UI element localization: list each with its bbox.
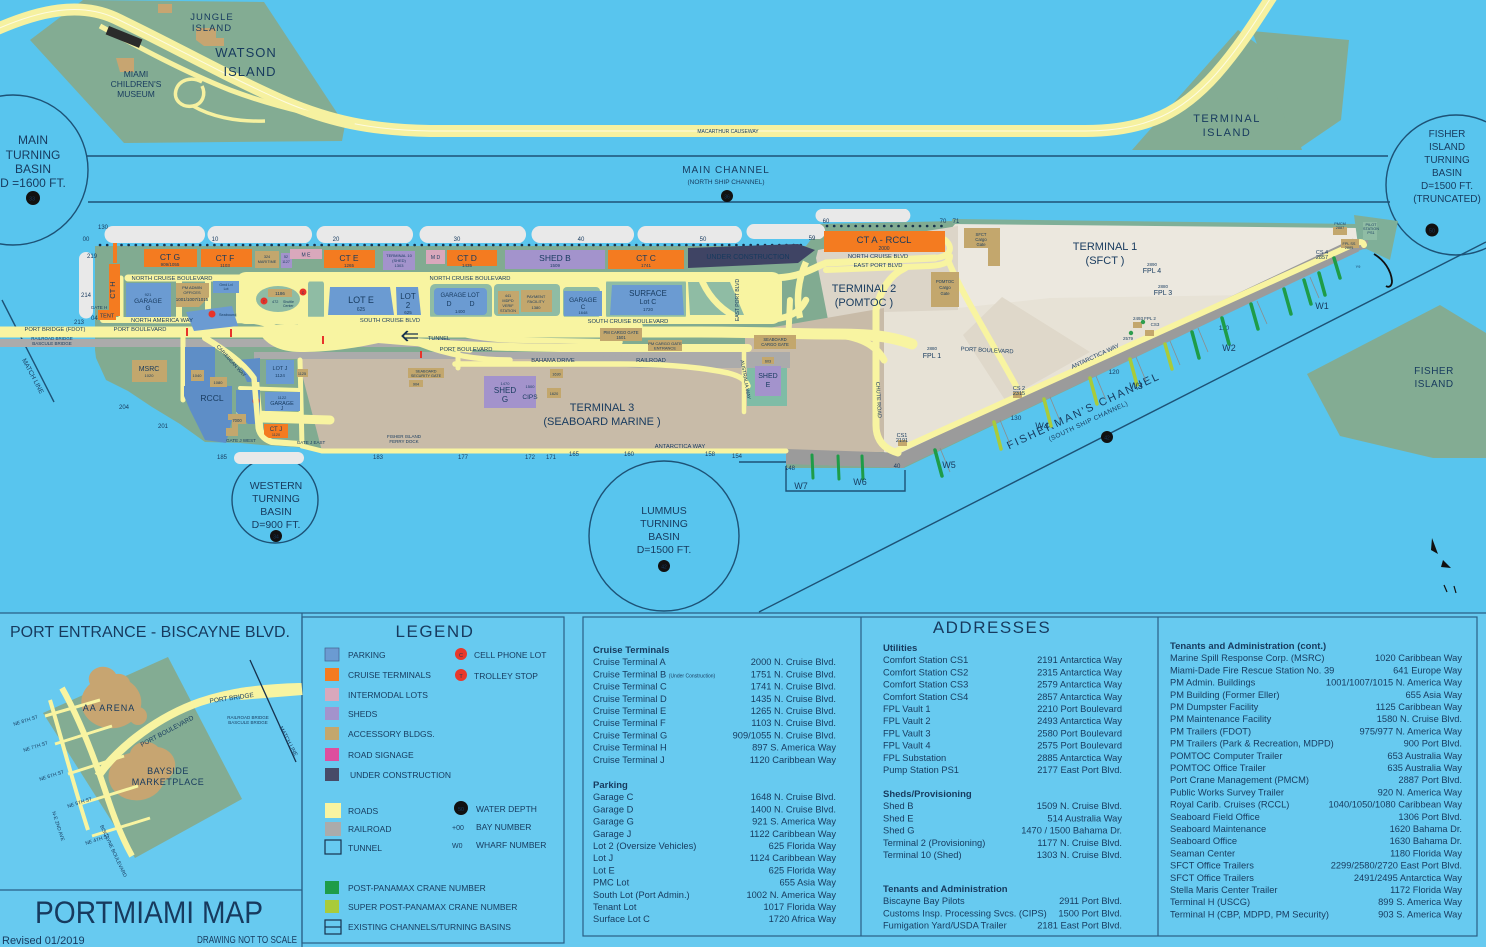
svg-text:Stella Maris Center Trailer: Stella Maris Center Trailer [1170, 885, 1277, 895]
svg-text:2890: 2890 [1147, 262, 1158, 267]
svg-text:WATSON: WATSON [215, 45, 277, 60]
svg-text:M D: M D [431, 255, 441, 261]
svg-text:1103 N. Cruise Blvd.: 1103 N. Cruise Blvd. [751, 718, 836, 728]
svg-text:LOT E: LOT E [348, 295, 374, 305]
svg-text:LOT J: LOT J [273, 366, 288, 372]
svg-text:1500: 1500 [526, 384, 536, 389]
svg-text:975/977 N. America Way: 975/977 N. America Way [1360, 726, 1463, 736]
svg-text:MSRC: MSRC [139, 366, 160, 373]
svg-text:(POMTOC ): (POMTOC ) [835, 297, 893, 309]
svg-text:Customs Insp. Processing Svcs.: Customs Insp. Processing Svcs. (CIPS) [883, 908, 1047, 918]
svg-text:Garage C: Garage C [593, 792, 634, 802]
svg-text:Cruise Terminal C: Cruise Terminal C [593, 682, 667, 692]
svg-text:FISHER: FISHER [1414, 366, 1454, 377]
svg-text:Seaman Center: Seaman Center [1170, 848, 1235, 858]
svg-text:201: 201 [158, 424, 169, 430]
svg-text:Lot J: Lot J [593, 853, 613, 863]
svg-text:(TRUNCATED): (TRUNCATED) [1413, 194, 1481, 205]
svg-text:625: 625 [404, 310, 412, 315]
svg-text:MARKETPLACE: MARKETPLACE [132, 777, 205, 787]
svg-text:Lot: Lot [224, 287, 229, 291]
svg-text:2493: 2493 [1133, 316, 1144, 321]
svg-text:1040: 1040 [193, 373, 203, 378]
svg-text:70: 70 [940, 219, 947, 225]
svg-text:42: 42 [1104, 436, 1110, 442]
svg-text:Garage G: Garage G [593, 817, 634, 827]
svg-text:LUMMUS: LUMMUS [641, 505, 687, 517]
svg-text:20: 20 [333, 237, 340, 243]
svg-text:ISLAND: ISLAND [1414, 379, 1453, 390]
svg-text:2: 2 [406, 301, 411, 310]
svg-text:D: D [446, 301, 451, 308]
svg-text:185: 185 [217, 455, 228, 461]
svg-text:CELL PHONE LOT: CELL PHONE LOT [474, 650, 546, 660]
svg-text:2880: 2880 [1158, 284, 1169, 289]
svg-text:TURNING: TURNING [1424, 155, 1470, 166]
svg-text:W1: W1 [1315, 301, 1329, 311]
svg-text:00: 00 [83, 237, 90, 243]
svg-text:1630 Bahama Dr.: 1630 Bahama Dr. [1390, 836, 1462, 846]
svg-text:897 S. America Way: 897 S. America Way [752, 743, 836, 753]
svg-text:SURFACE: SURFACE [629, 289, 667, 298]
svg-text:1124 Caribbean Way: 1124 Caribbean Way [750, 853, 837, 863]
svg-text:1180 Florida Way: 1180 Florida Way [1390, 848, 1462, 858]
svg-text:MUSEUM: MUSEUM [117, 89, 155, 99]
svg-text:904: 904 [413, 383, 419, 387]
svg-text:899 S. America Way: 899 S. America Way [1378, 897, 1462, 907]
svg-text:PORT BOULEVARD: PORT BOULEVARD [440, 347, 493, 353]
svg-text:BAY NUMBER: BAY NUMBER [476, 822, 531, 832]
svg-text:2191 Antarctica Way: 2191 Antarctica Way [1037, 655, 1122, 665]
svg-text:1435: 1435 [462, 263, 473, 268]
svg-text:Tenants and Administration (co: Tenants and Administration (cont.) [1170, 641, 1326, 652]
svg-text:2315 Antarctica Way: 2315 Antarctica Way [1037, 667, 1122, 677]
svg-text:2885 Antarctica Way: 2885 Antarctica Way [1037, 753, 1122, 763]
svg-text:1122 Caribbean Way: 1122 Caribbean Way [750, 829, 837, 839]
svg-text:40: 40 [894, 464, 901, 470]
svg-text:BASIN: BASIN [260, 506, 292, 518]
svg-text:1720: 1720 [643, 307, 654, 312]
svg-text:CT C: CT C [636, 253, 656, 263]
svg-text:1017 Florida Way: 1017 Florida Way [763, 902, 836, 912]
svg-text:D=1500 FT.: D=1500 FT. [1421, 181, 1473, 192]
svg-text:Surface Lot C: Surface Lot C [593, 914, 650, 924]
svg-text:Y9: Y9 [1356, 265, 1361, 269]
svg-text:921 S. America Way: 921 S. America Way [752, 817, 836, 827]
svg-text:INTERMODAL LOTS: INTERMODAL LOTS [348, 690, 428, 700]
svg-text:2000 N. Cruise Blvd.: 2000 N. Cruise Blvd. [751, 657, 836, 667]
svg-text:1103: 1103 [220, 263, 230, 268]
svg-text:CT H: CT H [108, 281, 117, 298]
svg-text:W0: W0 [452, 843, 463, 850]
svg-text:641 Europe Way: 641 Europe Way [1393, 665, 1462, 675]
svg-text:130: 130 [98, 225, 109, 231]
svg-text:1303 N. Cruise Blvd.: 1303 N. Cruise Blvd. [1037, 850, 1122, 860]
svg-text:177: 177 [458, 455, 469, 461]
svg-text:160: 160 [624, 452, 635, 458]
svg-text:2580 Port Boulevard: 2580 Port Boulevard [1037, 728, 1122, 738]
svg-text:BASCULE BRIDGE: BASCULE BRIDGE [228, 720, 268, 725]
svg-text:Comfort Station CS3: Comfort Station CS3 [883, 680, 968, 690]
svg-text:BAYSIDE: BAYSIDE [147, 766, 189, 776]
svg-text:South Lot (Port Admin.): South Lot (Port Admin.) [593, 890, 690, 900]
svg-text:Garage D: Garage D [593, 804, 634, 814]
svg-text:Shed E: Shed E [883, 813, 914, 823]
svg-text:1177 N. Cruise Blvd.: 1177 N. Cruise Blvd. [1037, 838, 1122, 848]
svg-text:2579 Antarctica Way: 2579 Antarctica Way [1037, 680, 1122, 690]
svg-text:ISLAND: ISLAND [1429, 142, 1465, 153]
svg-text:PMC Lot: PMC Lot [593, 878, 630, 888]
svg-text:PORT ENTRANCE - BISCAYNE BLVD.: PORT ENTRANCE - BISCAYNE BLVD. [10, 624, 290, 641]
svg-text:653 Australia Way: 653 Australia Way [1387, 751, 1462, 761]
svg-text:130: 130 [1011, 415, 1022, 422]
svg-text:1125 Caribbean Way: 1125 Caribbean Way [1376, 702, 1463, 712]
svg-text:Fumigation Yard/USDA Trailer: Fumigation Yard/USDA Trailer [883, 921, 1007, 931]
svg-text:903 S. America Way: 903 S. America Way [1378, 909, 1462, 919]
svg-text:FPL Vault 1: FPL Vault 1 [883, 704, 931, 714]
svg-text:625 Florida Way: 625 Florida Way [769, 865, 837, 875]
svg-text:SHEDS: SHEDS [348, 709, 378, 719]
svg-text:2191: 2191 [896, 438, 908, 444]
svg-text:7000: 7000 [232, 418, 242, 423]
svg-text:324: 324 [264, 255, 270, 259]
svg-text:ROAD SIGNAGE: ROAD SIGNAGE [348, 750, 414, 760]
svg-text:Public Works Survey Trailer: Public Works Survey Trailer [1170, 787, 1284, 797]
svg-text:TROLLEY STOP: TROLLEY STOP [474, 671, 538, 681]
svg-text:30: 30 [454, 237, 461, 243]
svg-text:MIAMI: MIAMI [124, 69, 149, 79]
svg-text:Terminal 2 (Provisioning): Terminal 2 (Provisioning) [883, 838, 985, 848]
svg-text:148: 148 [785, 466, 796, 472]
svg-text:Pump Station PS1: Pump Station PS1 [883, 765, 959, 775]
svg-text:PORT BOULEVARD: PORT BOULEVARD [114, 327, 167, 333]
svg-text:TENT: TENT [100, 314, 115, 320]
svg-text:CT E: CT E [339, 253, 359, 263]
svg-text:SHED: SHED [494, 386, 516, 395]
svg-text:TERMINAL 1: TERMINAL 1 [1073, 241, 1137, 253]
svg-text:NORTH CRUISE BOULEVARD: NORTH CRUISE BOULEVARD [430, 276, 511, 282]
svg-text:2887: 2887 [1336, 226, 1344, 230]
svg-text:1509: 1509 [550, 263, 561, 268]
svg-text:Seaboard Office: Seaboard Office [1170, 836, 1237, 846]
svg-text:Terminal H (CBP, MDPD, PM Secu: Terminal H (CBP, MDPD, PM Security) [1170, 909, 1329, 919]
svg-text:625 Florida Way: 625 Florida Way [769, 841, 837, 851]
svg-text:FPL 2: FPL 2 [1144, 316, 1156, 321]
svg-text:WESTERN: WESTERN [250, 480, 303, 492]
svg-text:RAILROAD: RAILROAD [636, 358, 666, 364]
svg-text:1509 N. Cruise Blvd.: 1509 N. Cruise Blvd. [1037, 801, 1122, 811]
svg-text:ENTRANCE: ENTRANCE [654, 346, 676, 351]
svg-text:TUNNEL: TUNNEL [348, 843, 382, 853]
svg-text:1500 Port Blvd.: 1500 Port Blvd. [1058, 908, 1122, 918]
svg-text:1400: 1400 [455, 309, 466, 314]
svg-text:Seaboard Maintenance: Seaboard Maintenance [1170, 824, 1266, 834]
svg-text:Terminal H (USCG): Terminal H (USCG) [1170, 897, 1250, 907]
svg-text:ISLAND: ISLAND [224, 64, 277, 79]
svg-text:D: D [469, 301, 474, 308]
svg-text:D =1600 FT.: D =1600 FT. [0, 176, 66, 190]
svg-text:PARKING: PARKING [348, 650, 386, 660]
svg-text:MACARTHUR CAUSEWAY: MACARTHUR CAUSEWAY [697, 129, 759, 135]
svg-text:2579: 2579 [1123, 336, 1134, 341]
svg-text:2880: 2880 [927, 346, 938, 351]
svg-text:1265 N. Cruise Blvd.: 1265 N. Cruise Blvd. [751, 706, 836, 716]
svg-text:EAST PORT BLVD: EAST PORT BLVD [735, 279, 741, 322]
svg-text:172: 172 [525, 455, 536, 461]
svg-text:ROADS: ROADS [348, 806, 379, 816]
svg-text:1303: 1303 [395, 263, 405, 268]
svg-text:POMTOC: POMTOC [936, 279, 954, 284]
svg-text:2181 East Port Blvd.: 2181 East Port Blvd. [1037, 921, 1122, 931]
svg-text:214: 214 [81, 293, 92, 299]
svg-text:W3: W3 [1129, 381, 1143, 391]
svg-text:TERMINAL 3: TERMINAL 3 [570, 402, 634, 414]
svg-text:2885: 2885 [1345, 246, 1353, 250]
svg-text:SEABOARD: SEABOARD [415, 370, 436, 374]
svg-text:635 Australia Way: 635 Australia Way [1387, 763, 1462, 773]
svg-text:POMTOC Computer Trailer: POMTOC Computer Trailer [1170, 751, 1282, 761]
svg-text:E: E [766, 382, 771, 389]
svg-text:Cruise Terminal A: Cruise Terminal A [593, 657, 666, 667]
svg-text:LEGEND: LEGEND [396, 622, 475, 641]
svg-text:PM Building (Former Eller): PM Building (Former Eller) [1170, 690, 1280, 700]
svg-text:1001/1007/1015 N. America Way: 1001/1007/1015 N. America Way [1326, 678, 1462, 688]
svg-text:FPL Substation: FPL Substation [883, 753, 946, 763]
svg-text:BASIN: BASIN [1432, 168, 1462, 179]
svg-text:W6: W6 [853, 477, 867, 487]
svg-text:441: 441 [505, 294, 511, 298]
svg-text:GARAGE: GARAGE [134, 298, 162, 305]
svg-text:165: 165 [569, 452, 580, 458]
svg-text:(SFCT ): (SFCT ) [1086, 255, 1125, 267]
svg-text:FPL 3: FPL 3 [1154, 290, 1173, 297]
svg-text:34: 34 [273, 535, 279, 541]
svg-text:ANTARCTICA WAY: ANTARCTICA WAY [655, 444, 706, 450]
svg-text:FPL Vault 2: FPL Vault 2 [883, 716, 931, 726]
svg-text:Cruise Terminal D: Cruise Terminal D [593, 694, 667, 704]
svg-text:Cargo: Cargo [939, 285, 951, 290]
svg-text:1470 / 1500 Bahama Dr.: 1470 / 1500 Bahama Dr. [1021, 826, 1122, 836]
svg-text:1400 N. Cruise Blvd.: 1400 N. Cruise Blvd. [751, 804, 836, 814]
svg-text:Comfort Station CS2: Comfort Station CS2 [883, 667, 968, 677]
svg-text:2000: 2000 [878, 246, 889, 252]
svg-text:1380: 1380 [532, 305, 542, 310]
svg-text:(SEABOARD MARINE ): (SEABOARD MARINE ) [543, 416, 660, 428]
svg-text:PORTMIAMI MAP: PORTMIAMI MAP [35, 894, 263, 930]
svg-text:CIPS: CIPS [522, 394, 538, 401]
svg-text:W7: W7 [794, 481, 808, 491]
svg-text:909/1055 N. Cruise Blvd.: 909/1055 N. Cruise Blvd. [733, 730, 836, 740]
svg-text:CT F: CT F [216, 253, 235, 263]
svg-text:1741 N. Cruise Blvd.: 1741 N. Cruise Blvd. [751, 682, 836, 692]
svg-text:W2: W2 [1222, 343, 1236, 353]
svg-text:472: 472 [272, 300, 278, 304]
svg-text:Cruise Terminal G: Cruise Terminal G [593, 730, 667, 740]
svg-text:RAILROAD: RAILROAD [348, 824, 391, 834]
svg-text:219: 219 [87, 254, 98, 260]
svg-text:1080: 1080 [214, 380, 224, 385]
svg-text:1620: 1620 [550, 392, 558, 396]
svg-text:SUPER POST-PANAMAX CRANE NUMBE: SUPER POST-PANAMAX CRANE NUMBER [348, 902, 517, 912]
svg-text:PM Dumpster Facility: PM Dumpster Facility [1170, 702, 1259, 712]
svg-text:1127: 1127 [282, 260, 290, 264]
svg-text:1648: 1648 [579, 310, 589, 315]
svg-text:Cruise Terminals: Cruise Terminals [593, 645, 669, 656]
svg-text:PM Admin. Buildings: PM Admin. Buildings [1170, 678, 1256, 688]
svg-text:Cruise Terminal E: Cruise Terminal E [593, 706, 666, 716]
svg-text:BAHAMA DRIVE: BAHAMA DRIVE [531, 358, 575, 364]
svg-text:TURNING: TURNING [252, 493, 300, 505]
svg-text:Gate: Gate [976, 242, 986, 247]
svg-text:1124: 1124 [275, 373, 285, 378]
svg-text:Terminal 10 (Shed): Terminal 10 (Shed) [883, 850, 962, 860]
svg-text:1002 N. America Way: 1002 N. America Way [746, 890, 836, 900]
svg-text:1306 Port Blvd.: 1306 Port Blvd. [1398, 812, 1462, 822]
svg-text:Royal Carib. Cruises (RCCL): Royal Carib. Cruises (RCCL) [1170, 800, 1289, 810]
svg-text:1020 Caribbean Way: 1020 Caribbean Way [1375, 653, 1462, 663]
svg-text:1751 N. Cruise Blvd.: 1751 N. Cruise Blvd. [751, 669, 836, 679]
svg-text:NORTH AMERICA WAY: NORTH AMERICA WAY [131, 318, 193, 324]
svg-text:920 N. America Way: 920 N. America Way [1378, 787, 1463, 797]
svg-text:BASCULE BRIDGE: BASCULE BRIDGE [32, 341, 72, 346]
svg-text:Cruise Terminal H: Cruise Terminal H [593, 743, 667, 753]
svg-text:ACCESSORY BLDGS.: ACCESSORY BLDGS. [348, 729, 435, 739]
svg-text:183: 183 [373, 455, 384, 461]
svg-text:1186: 1186 [275, 291, 285, 296]
svg-text:TUNNEL: TUNNEL [428, 336, 450, 342]
svg-text:W5: W5 [942, 460, 956, 470]
svg-text:TURNING: TURNING [640, 518, 688, 530]
svg-text:Cruise Terminal F: Cruise Terminal F [593, 718, 666, 728]
svg-text:655 Asia Way: 655 Asia Way [1406, 690, 1463, 700]
svg-text:Shed B: Shed B [883, 801, 914, 811]
svg-text:MARITIME: MARITIME [258, 260, 277, 264]
svg-text:Utilities: Utilities [883, 643, 917, 654]
svg-text:FPL Vault 3: FPL Vault 3 [883, 728, 931, 738]
svg-text:PM Trailers (FDOT): PM Trailers (FDOT) [1170, 726, 1251, 736]
svg-text:1020: 1020 [145, 373, 155, 378]
svg-text:1648 N. Cruise Blvd.: 1648 N. Cruise Blvd. [751, 792, 836, 802]
svg-text:(NORTH SHIP CHANNEL): (NORTH SHIP CHANNEL) [687, 179, 764, 186]
svg-text:MAIN: MAIN [18, 133, 48, 147]
svg-text:PM Trailers (Park & Recreatio: PM Trailers (Park & Recreation, MDPD) [1170, 739, 1334, 749]
svg-text:2315: 2315 [1013, 391, 1025, 397]
svg-text:1435 N. Cruise Blvd.: 1435 N. Cruise Blvd. [751, 694, 836, 704]
svg-text:50: 50 [1429, 229, 1435, 235]
svg-text:D=1500 FT.: D=1500 FT. [637, 544, 692, 556]
svg-text:GATE J WEST: GATE J WEST [226, 438, 256, 443]
svg-text:GARAGE: GARAGE [569, 297, 597, 304]
svg-text:BASIN: BASIN [648, 531, 680, 543]
svg-text:CARGO GATE: CARGO GATE [761, 342, 789, 347]
svg-text:1120: 1120 [272, 433, 280, 437]
svg-text:Garage J: Garage J [593, 829, 631, 839]
svg-text:G: G [502, 395, 508, 404]
svg-text:59: 59 [809, 236, 816, 242]
svg-text:Parking: Parking [593, 780, 628, 791]
svg-text:MDPD: MDPD [502, 299, 513, 303]
svg-text:OFFICES: OFFICES [183, 290, 201, 295]
svg-text:NORTH CRUISE BOULEVARD: NORTH CRUISE BOULEVARD [132, 276, 213, 282]
svg-text:60: 60 [823, 219, 830, 225]
svg-text:1580 N. Cruise Blvd.: 1580 N. Cruise Blvd. [1377, 714, 1462, 724]
svg-text:52: 52 [284, 255, 288, 259]
svg-text:WATER DEPTH: WATER DEPTH [476, 804, 537, 814]
svg-text:Seabound: Seabound [219, 313, 236, 317]
svg-text:921: 921 [145, 292, 152, 297]
svg-text:POMTOC Office Trailer: POMTOC Office Trailer [1170, 763, 1266, 773]
svg-text:G: G [145, 305, 150, 312]
svg-text:MAIN CHANNEL: MAIN CHANNEL [682, 165, 770, 176]
svg-text:SECURITY GATE: SECURITY GATE [411, 374, 442, 378]
svg-text:2299/2580/2720 East Port Blvd.: 2299/2580/2720 East Port Blvd. [1331, 861, 1462, 871]
svg-text:M E: M E [302, 253, 312, 259]
svg-text:2493 Antarctica Way: 2493 Antarctica Way [1037, 716, 1122, 726]
svg-text:CRUISE TERMINALS: CRUISE TERMINALS [348, 670, 431, 680]
svg-text:FERRY DOCK: FERRY DOCK [389, 439, 418, 444]
svg-text:Revised 01/2019: Revised 01/2019 [2, 935, 85, 947]
svg-text:SFCT Office Trailers: SFCT Office Trailers [1170, 873, 1254, 883]
svg-text:42: 42 [661, 565, 667, 571]
svg-text:Lot E: Lot E [593, 865, 615, 875]
svg-text:909/1055: 909/1055 [161, 262, 180, 267]
svg-text:FPL Vault 4: FPL Vault 4 [883, 741, 931, 751]
svg-text:CHILDREN'S: CHILDREN'S [111, 79, 162, 89]
svg-text:D=900 FT.: D=900 FT. [252, 519, 301, 531]
svg-text:AA ARENA: AA ARENA [83, 703, 136, 713]
svg-text:PM Maintenance Facility: PM Maintenance Facility [1170, 714, 1272, 724]
svg-text:SFCT Office Trailers: SFCT Office Trailers [1170, 861, 1254, 871]
svg-text:Cruise Terminal J: Cruise Terminal J [593, 755, 665, 765]
svg-text:2177 East Port Blvd.: 2177 East Port Blvd. [1037, 765, 1122, 775]
svg-text:1630: 1630 [552, 373, 560, 377]
svg-text:STATION: STATION [500, 309, 516, 313]
svg-text:158: 158 [705, 452, 716, 458]
svg-text:EXISTING CHANNELS/TURNING BASI: EXISTING CHANNELS/TURNING BASINS [348, 922, 511, 932]
svg-text:UNDER CONSTRUCTION: UNDER CONSTRUCTION [350, 770, 451, 780]
svg-text:CT A - RCCL: CT A - RCCL [857, 235, 912, 246]
svg-text:NORTH CRUISE BLVD: NORTH CRUISE BLVD [848, 254, 908, 260]
svg-text:GATE H: GATE H [91, 305, 107, 310]
svg-text:TURNING: TURNING [6, 148, 61, 162]
svg-text:TERMINAL 2: TERMINAL 2 [832, 283, 896, 295]
svg-text:FPL 4: FPL 4 [1143, 268, 1162, 275]
svg-text:1265: 1265 [344, 263, 355, 268]
svg-text:Lot C: Lot C [640, 299, 657, 306]
svg-text:2857 Antarctica Way: 2857 Antarctica Way [1037, 692, 1122, 702]
svg-text:WHARF NUMBER: WHARF NUMBER [476, 840, 546, 850]
svg-text:Seaboard Field Office: Seaboard Field Office [1170, 812, 1260, 822]
svg-text:Lot 2 (Oversize Vehicles): Lot 2 (Oversize Vehicles) [593, 841, 696, 851]
svg-text:W4: W4 [1035, 421, 1049, 431]
svg-text:ISLAND: ISLAND [1203, 127, 1252, 139]
svg-text:213: 213 [74, 320, 85, 326]
svg-text:PORT BRIDGE (FDOT): PORT BRIDGE (FDOT) [25, 327, 86, 333]
svg-text:ADDRESSES: ADDRESSES [933, 618, 1051, 637]
svg-text:1122: 1122 [278, 395, 287, 400]
svg-text:CS3: CS3 [1151, 322, 1160, 327]
svg-text:GARAGE LOT: GARAGE LOT [440, 293, 479, 299]
svg-text:655 Asia Way: 655 Asia Way [780, 878, 837, 888]
svg-text:40: 40 [578, 237, 585, 243]
svg-text:2887 Port Blvd.: 2887 Port Blvd. [1398, 775, 1462, 785]
svg-text:1120 Caribbean Way: 1120 Caribbean Way [750, 755, 837, 765]
svg-text:DRAWING NOT TO SCALE: DRAWING NOT TO SCALE [197, 934, 297, 946]
svg-text:CT D: CT D [457, 253, 477, 263]
svg-text:EAST PORT BLVD: EAST PORT BLVD [854, 263, 903, 269]
svg-text:10: 10 [212, 237, 219, 243]
svg-text:71: 71 [953, 219, 960, 225]
